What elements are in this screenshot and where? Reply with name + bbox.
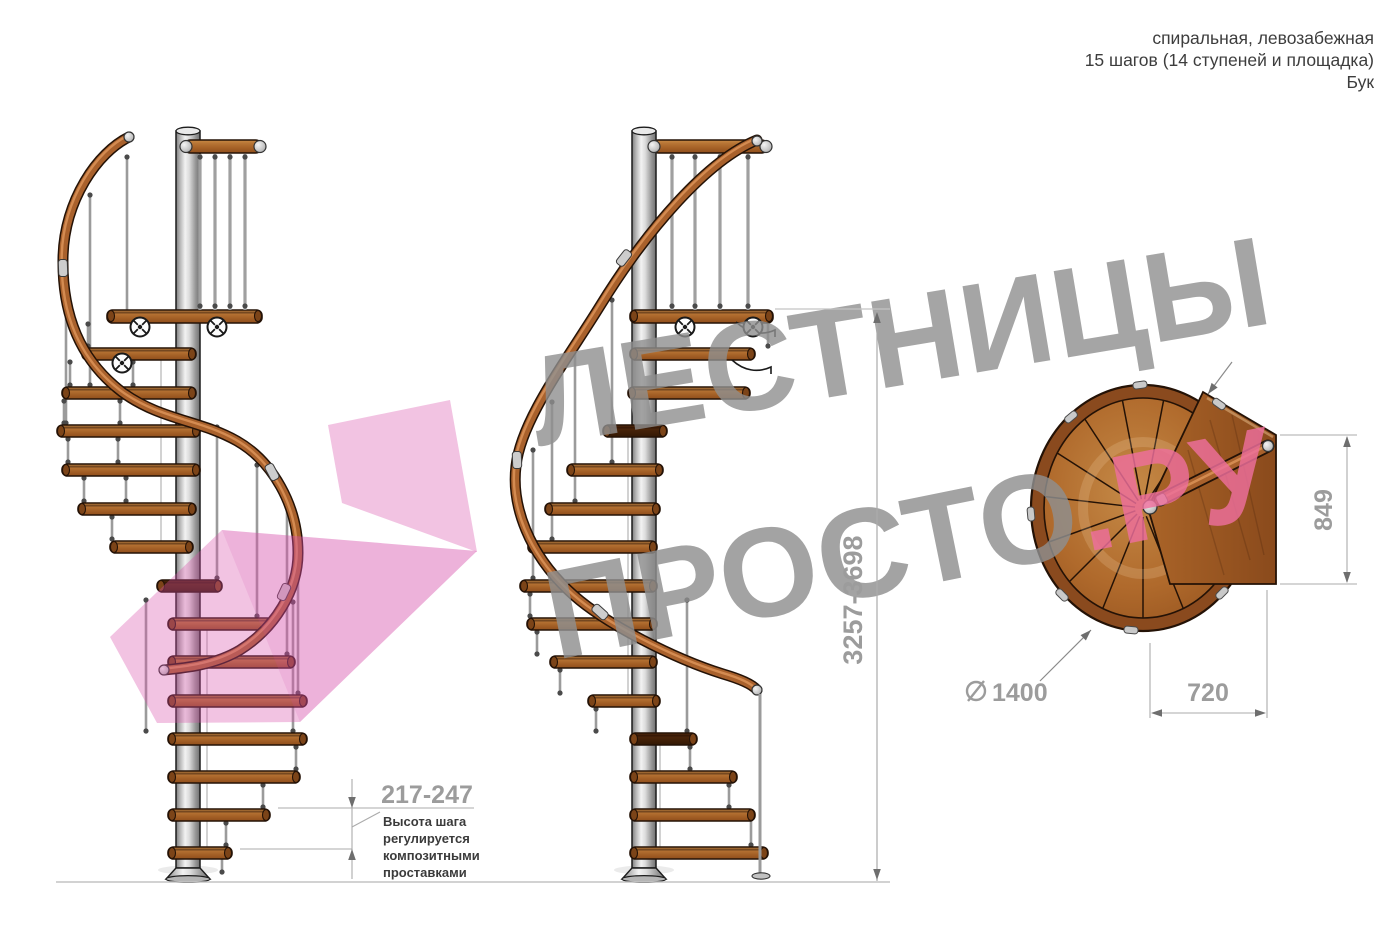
- baluster-knob: [212, 303, 217, 308]
- baluster-knob: [212, 154, 217, 159]
- tread-end-cap: [189, 387, 196, 398]
- left-elevation-view: [57, 127, 307, 882]
- dimension-arrowhead: [1255, 709, 1266, 717]
- dimension-arrowhead: [348, 849, 356, 860]
- circle-shape: [120, 361, 124, 365]
- baluster-knob: [124, 154, 129, 159]
- middle-elevation-view: [512, 127, 775, 882]
- title-block: спиральная, левозабежная 15 шагов (14 ст…: [1085, 28, 1375, 92]
- dimension-line: [352, 812, 380, 827]
- tread-end-cap: [169, 847, 176, 858]
- tread-end-cap: [79, 503, 86, 514]
- tread-end-cap: [656, 464, 663, 475]
- dimension-arrowhead: [1151, 709, 1162, 717]
- baluster-knob: [593, 728, 598, 733]
- composite-spacer: [113, 354, 132, 373]
- tread-end-cap: [169, 733, 176, 744]
- tread-end-cap: [631, 733, 638, 744]
- baluster-knob: [219, 869, 224, 874]
- tread-end-cap: [528, 618, 535, 629]
- tread-end-cap: [63, 387, 70, 398]
- tread-end-cap: [293, 771, 300, 782]
- baluster-knob: [197, 303, 202, 308]
- tread-end-cap: [255, 310, 262, 321]
- tread-end-cap: [263, 809, 270, 820]
- dimension-arrowhead: [348, 797, 356, 808]
- tread-end-cap: [690, 733, 697, 744]
- tread-end-cap: [653, 503, 660, 514]
- composite-spacer: [131, 318, 150, 337]
- baluster-knob: [227, 303, 232, 308]
- title-material: Бук: [1346, 72, 1374, 92]
- landing-width-label: 720: [1187, 679, 1229, 707]
- title-steps: 15 шагов (14 ступеней и площадка): [1085, 50, 1374, 70]
- pole-top-cap: [632, 127, 656, 135]
- rim-connector: [1133, 381, 1148, 390]
- tread-end-cap: [58, 425, 65, 436]
- handrail-sleeve: [58, 259, 68, 276]
- baluster-knob: [242, 154, 247, 159]
- baluster-knob: [669, 154, 674, 159]
- rim-connector: [1124, 626, 1139, 634]
- baluster-knob: [87, 192, 92, 197]
- baluster-knob: [143, 728, 148, 733]
- baluster-knob: [692, 154, 697, 159]
- tread-end-cap: [761, 847, 768, 858]
- rail-cap: [254, 141, 266, 153]
- tread-end-cap: [186, 541, 193, 552]
- diameter-label: 1400: [992, 679, 1048, 707]
- tread-end-cap: [300, 733, 307, 744]
- rail-cap: [648, 141, 660, 153]
- tread-end-cap: [169, 771, 176, 782]
- note-line-4: проставками: [383, 865, 467, 880]
- handrail-sleeve: [512, 451, 522, 468]
- center-pole: [176, 131, 200, 868]
- note-line-1: Высота шага: [383, 814, 467, 829]
- baluster-knob: [85, 321, 90, 326]
- baluster-knob: [242, 303, 247, 308]
- dimension-arrowhead: [873, 869, 881, 880]
- dimension-arrowhead: [1343, 436, 1351, 447]
- tread-end-cap: [653, 695, 660, 706]
- composite-spacer: [208, 318, 227, 337]
- circle-shape: [215, 325, 219, 329]
- tread-end-cap: [189, 503, 196, 514]
- spiral-staircase-technical-drawing: ЛЕСТНИЦЫ ПРОСТО.РУ 3257-3698 217-247 849…: [0, 0, 1400, 949]
- tread-end-cap: [631, 847, 638, 858]
- tread-end-cap: [189, 348, 196, 359]
- baluster-knob: [197, 154, 202, 159]
- pole-top-cap: [176, 127, 200, 135]
- post-foot: [752, 873, 770, 879]
- step-height-label: 217-247: [381, 781, 473, 809]
- tread-end-cap: [631, 809, 638, 820]
- total-height-label: 3257-3698: [838, 535, 868, 664]
- baluster-knob: [534, 651, 539, 656]
- tread-end-cap: [748, 809, 755, 820]
- baluster-knob: [227, 154, 232, 159]
- tread-end-cap: [631, 771, 638, 782]
- left-staircase: [57, 127, 307, 882]
- handrail-end-cap: [124, 132, 134, 142]
- tread-end-cap: [546, 503, 553, 514]
- tread-end-cap: [169, 809, 176, 820]
- tread-end-cap: [589, 695, 596, 706]
- tread-end-cap: [63, 464, 70, 475]
- pink-arrow-watermark: [110, 400, 477, 723]
- dimension-arrowhead: [1343, 572, 1351, 583]
- handrail-end-cap: [752, 136, 762, 146]
- railing-top-rail: [184, 140, 262, 153]
- note-line-3: композитными: [383, 848, 480, 863]
- arrow-watermark-top-block: [328, 400, 477, 552]
- circle-shape: [138, 325, 142, 329]
- baluster-knob: [745, 154, 750, 159]
- baluster-knob: [557, 690, 562, 695]
- step-height-note: Высота шага регулируется композитными пр…: [383, 814, 480, 880]
- tread-end-cap: [108, 310, 115, 321]
- landing-depth-label: 849: [1310, 489, 1338, 531]
- tread-end-cap: [521, 580, 528, 591]
- note-line-2: регулируется: [383, 831, 470, 846]
- baluster-knob: [530, 447, 535, 452]
- tread-end-cap: [730, 771, 737, 782]
- rail-cap: [180, 141, 192, 153]
- diameter-dimension: 1400: [967, 679, 1048, 707]
- middle-staircase: [512, 127, 775, 882]
- handrail-end-cap: [752, 685, 762, 695]
- tread-end-cap: [111, 541, 118, 552]
- drawing-page: ЛЕСТНИЦЫ ПРОСТО.РУ 3257-3698 217-247 849…: [0, 0, 1400, 949]
- handrail-sleeve: [264, 462, 280, 481]
- title-type: спиральная, левозабежная: [1152, 28, 1374, 48]
- tread-end-cap: [225, 847, 232, 858]
- tread-end-cap: [193, 464, 200, 475]
- baluster-knob: [67, 359, 72, 364]
